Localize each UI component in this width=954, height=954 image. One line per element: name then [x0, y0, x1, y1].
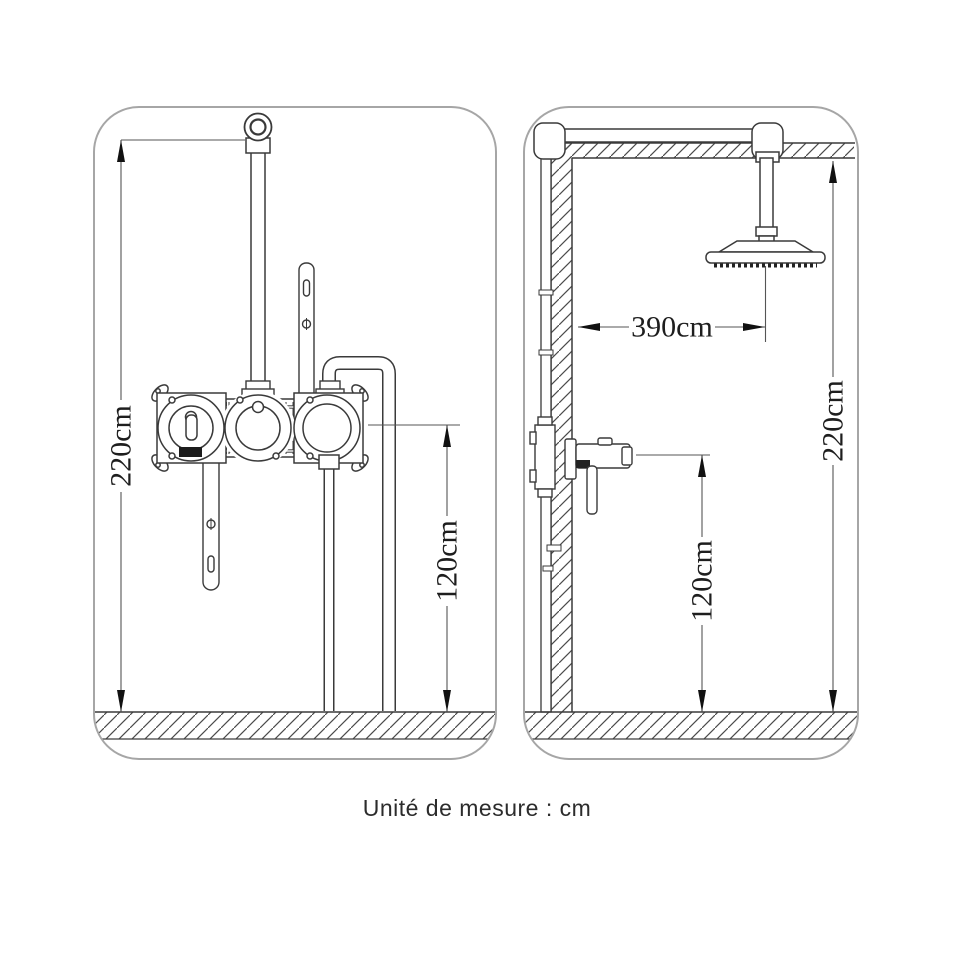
- head-offset-label: 390cm: [631, 311, 713, 344]
- hose-nut: [319, 455, 339, 469]
- front-total-height-label: 220cm: [105, 405, 138, 487]
- lower-bracket: [203, 450, 219, 590]
- side-floor-hatch: [525, 712, 857, 739]
- side-panel-border: [524, 107, 858, 759]
- pipe-elbow-left: [534, 123, 565, 159]
- escutcheon: [565, 439, 576, 479]
- front-valve-height-label: 120cm: [431, 520, 464, 602]
- side-total-height-label: 220cm: [817, 380, 850, 462]
- middle-port-notch: [253, 402, 264, 413]
- drop-pipe: [760, 158, 773, 228]
- unit-caption: Unité de mesure : cm: [0, 795, 954, 822]
- head-connector-nut: [756, 227, 777, 236]
- upper-bracket: [299, 263, 314, 408]
- front-view-panel: 220cm 120cm: [94, 107, 496, 759]
- arm-connector-hole: [251, 120, 266, 135]
- mixer-handle: [587, 466, 597, 514]
- side-valve-height-label: 120cm: [686, 540, 719, 622]
- mixer-valve-front: [149, 382, 371, 474]
- diagram-page: 220cm 120cm: [0, 0, 954, 954]
- front-floor-hatch: [95, 712, 495, 739]
- side-view-panel: 390cm 220cm 120cm: [524, 107, 858, 759]
- ceiling-hatch: [551, 143, 854, 158]
